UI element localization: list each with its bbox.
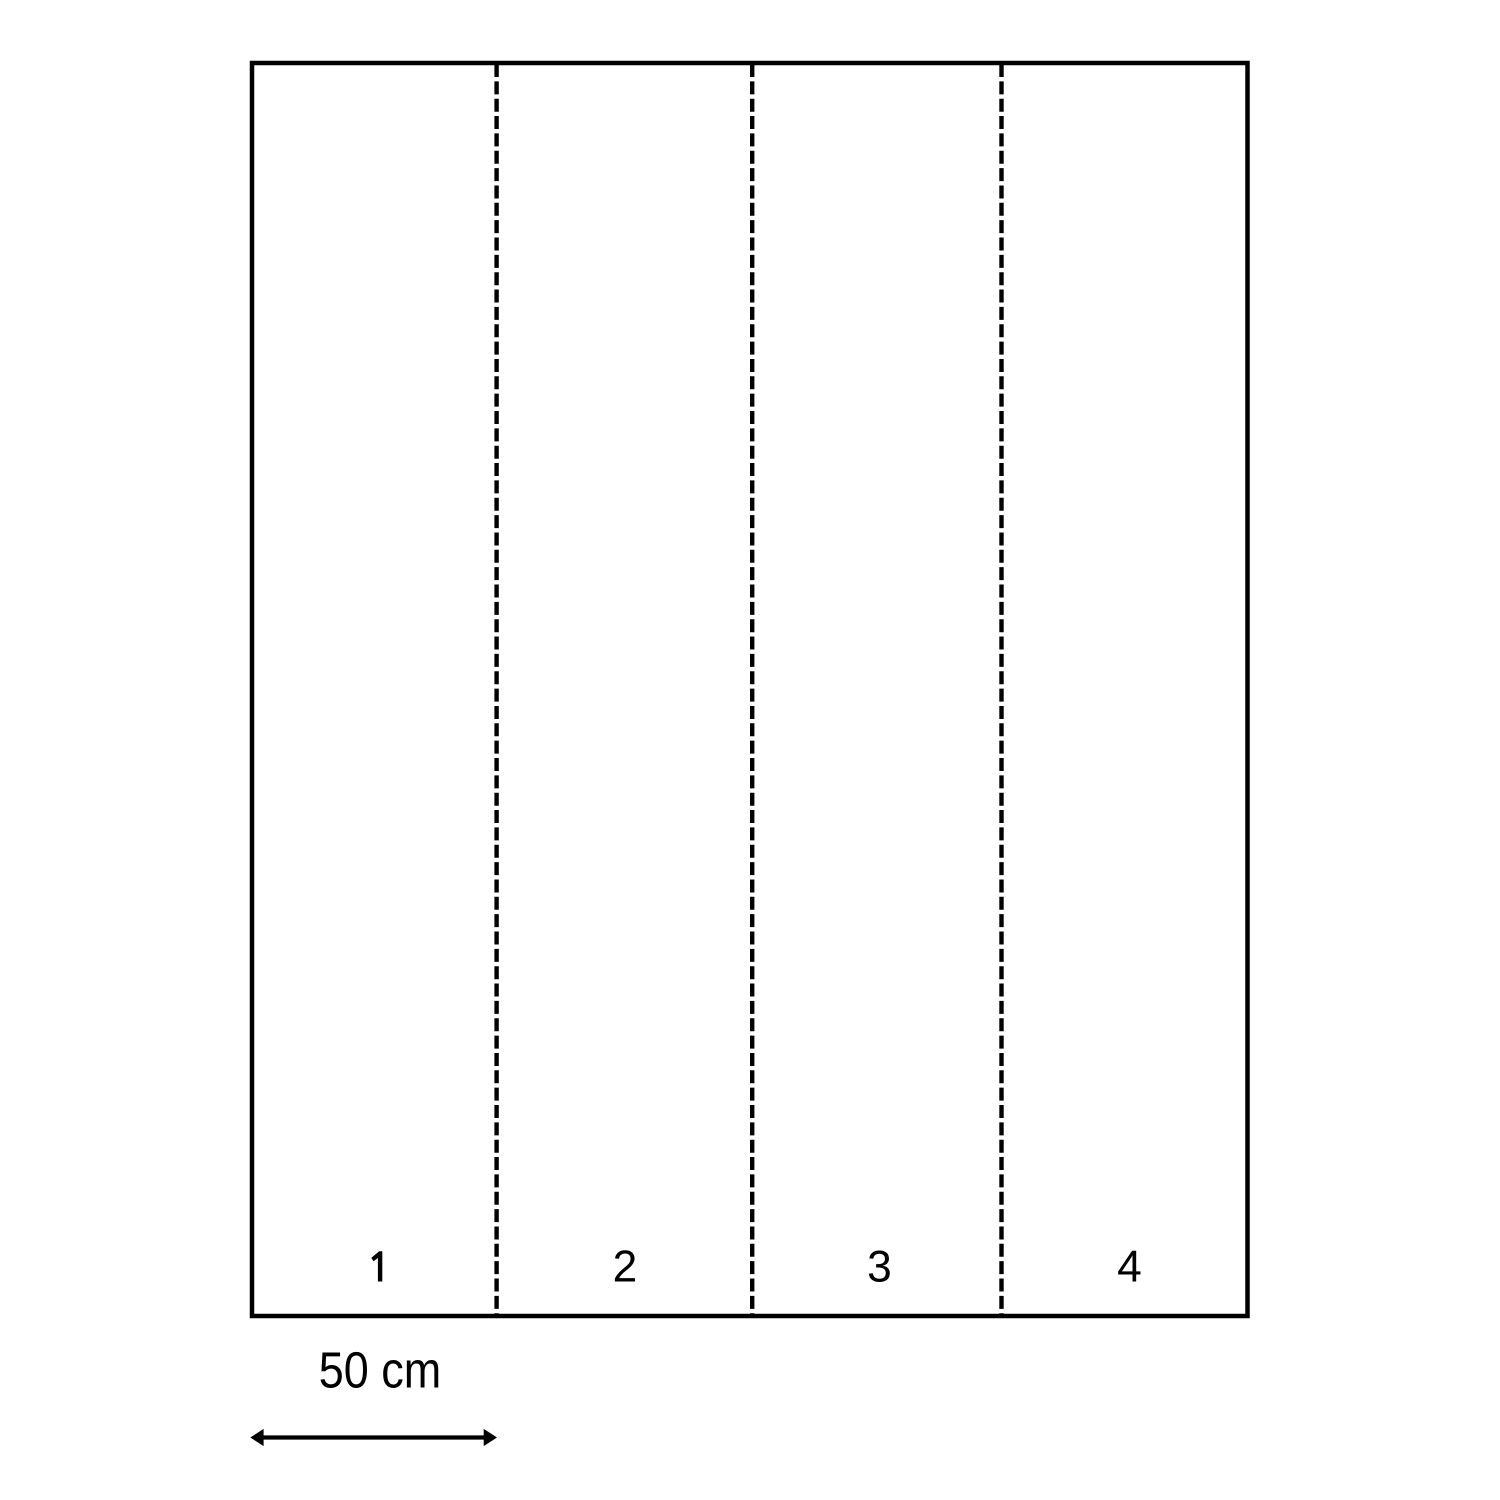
svg-text:2: 2 <box>613 1243 638 1292</box>
svg-text:3: 3 <box>867 1243 892 1292</box>
svg-text:50 cm: 50 cm <box>319 1342 442 1399</box>
svg-text:4: 4 <box>1117 1243 1142 1292</box>
